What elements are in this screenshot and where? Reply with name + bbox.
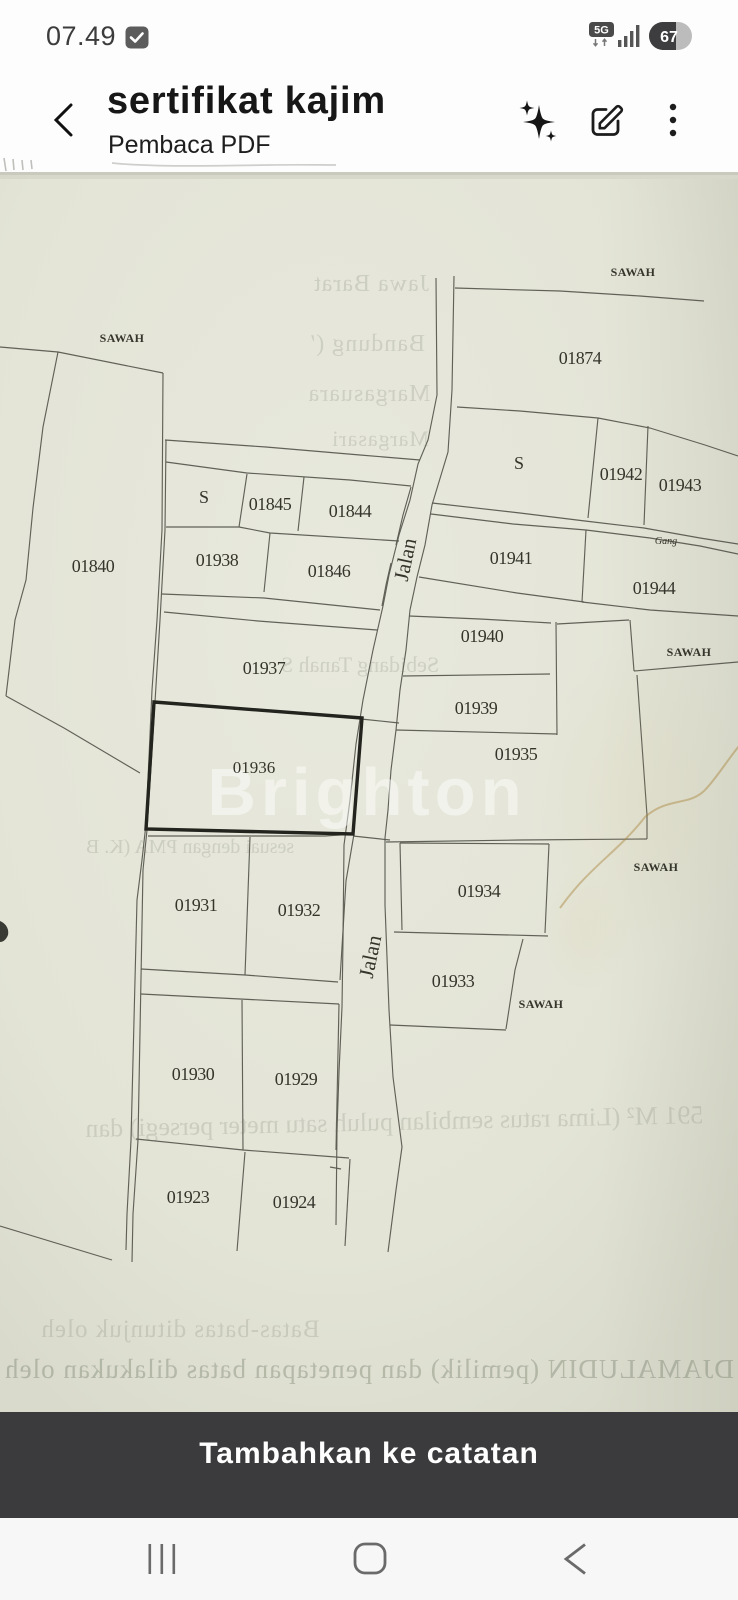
- svg-text:67: 67: [660, 29, 678, 46]
- svg-text:sesuai dengan PMA (K. B: sesuai dengan PMA (K. B: [86, 836, 294, 858]
- svg-text:Gang: Gang: [655, 536, 677, 547]
- svg-text:01840: 01840: [72, 556, 115, 576]
- svg-text:01874: 01874: [559, 348, 602, 368]
- svg-text:DJAMALUDIN (pemilik) dan penet: DJAMALUDIN (pemilik) dan penetapan batas…: [4, 1354, 734, 1384]
- svg-text:01941: 01941: [490, 548, 533, 568]
- svg-text:5G: 5G: [594, 25, 609, 37]
- svg-text:01933: 01933: [432, 971, 475, 991]
- svg-text:01937: 01937: [243, 658, 286, 678]
- svg-text:Jawa Barat: Jawa Barat: [313, 271, 429, 297]
- svg-text:01944: 01944: [633, 578, 676, 598]
- svg-text:01924: 01924: [273, 1192, 316, 1212]
- svg-text:01845: 01845: [249, 494, 292, 514]
- svg-text:Batas-batas ditunjuk oleh: Batas-batas ditunjuk oleh: [40, 1316, 319, 1343]
- svg-text:01923: 01923: [167, 1187, 210, 1207]
- svg-text:01931: 01931: [175, 895, 218, 915]
- svg-text:SAWAH: SAWAH: [611, 265, 656, 279]
- svg-text:01940: 01940: [461, 626, 504, 646]
- svg-text:01938: 01938: [196, 550, 239, 570]
- svg-text:01942: 01942: [600, 464, 643, 484]
- svg-text:01846: 01846: [308, 561, 351, 581]
- svg-text:01934: 01934: [458, 881, 501, 901]
- svg-text:Margasari: Margasari: [331, 426, 429, 451]
- svg-text:01844: 01844: [329, 501, 372, 521]
- svg-text:S: S: [514, 453, 524, 473]
- svg-text:SAWAH: SAWAH: [634, 860, 679, 874]
- svg-text:01932: 01932: [278, 900, 321, 920]
- svg-text:01943: 01943: [659, 475, 702, 495]
- svg-text:01935: 01935: [495, 744, 538, 764]
- svg-text:SAWAH: SAWAH: [100, 331, 145, 345]
- svg-text:Margasuara: Margasuara: [308, 381, 431, 407]
- svg-text:Sebidang Tanah S: Sebidang Tanah S: [281, 652, 439, 677]
- svg-text:Bandung (ʹ: Bandung (ʹ: [309, 331, 425, 357]
- svg-text:01929: 01929: [275, 1069, 318, 1089]
- svg-text:01936: 01936: [233, 758, 276, 777]
- svg-text:01930: 01930: [172, 1064, 215, 1084]
- svg-text:01939: 01939: [455, 698, 498, 718]
- svg-text:S: S: [199, 487, 209, 507]
- svg-text:SAWAH: SAWAH: [667, 645, 712, 659]
- svg-text:SAWAH: SAWAH: [519, 997, 564, 1011]
